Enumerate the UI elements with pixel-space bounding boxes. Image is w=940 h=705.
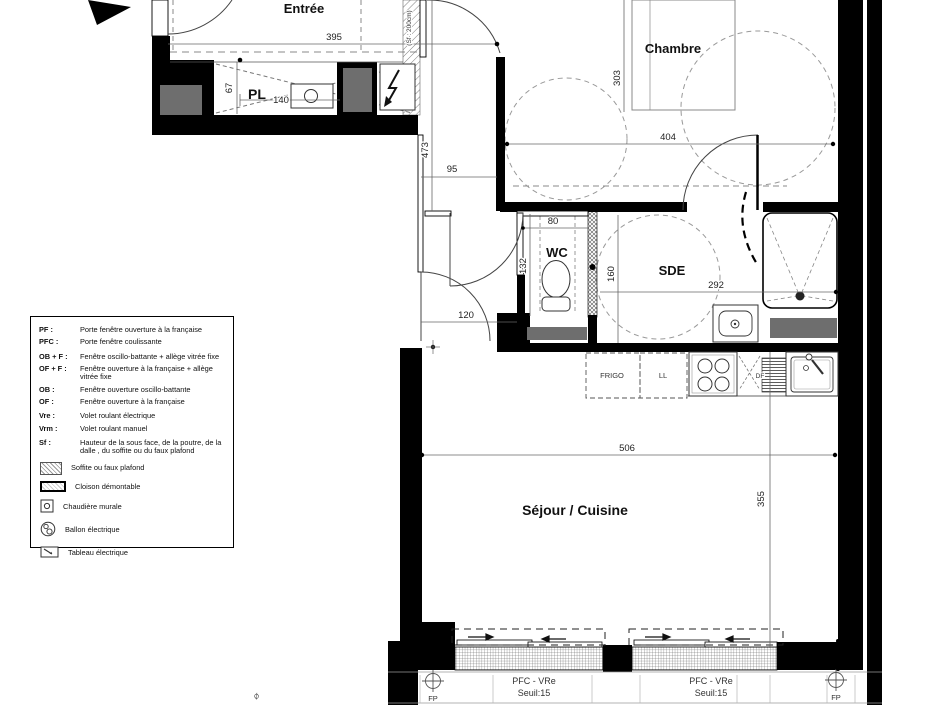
legend-symbol-cloison: Cloison démontable xyxy=(40,481,227,492)
dim-160: 160 xyxy=(606,266,617,282)
walls xyxy=(152,0,882,705)
legend-abbr: Vre : xyxy=(39,412,75,420)
legend-item-off: OF + F : Fenêtre ouverture à la français… xyxy=(39,365,227,381)
duct-wall xyxy=(588,210,597,317)
legend-symbol-label: Cloison démontable xyxy=(75,483,140,491)
legend-symbol-label: Soffite ou faux plafond xyxy=(71,464,144,472)
toilet xyxy=(542,261,570,312)
fp-symbol-left xyxy=(422,670,444,692)
dim-132: 132 xyxy=(518,258,529,274)
dim-80: 80 xyxy=(548,216,559,227)
north-arrow-icon xyxy=(88,0,131,25)
fp-left-label: FP xyxy=(428,694,438,703)
legend-abbr: OB : xyxy=(39,386,75,394)
dim-95: 95 xyxy=(447,164,458,175)
legend-symbol-label: Tableau électrique xyxy=(68,549,128,557)
legend-desc: Volet roulant manuel xyxy=(80,425,227,433)
legend-abbr: PF : xyxy=(39,326,75,334)
soffite-swatch-icon xyxy=(40,462,62,475)
legend-item-of: OF : Fenêtre ouverture à la française xyxy=(39,398,227,406)
legend-symbol-label: Ballon électrique xyxy=(65,526,120,534)
legend-abbr: OB + F : xyxy=(39,353,75,361)
legend-abbr: OF + F : xyxy=(39,365,75,381)
dim-506: 506 xyxy=(619,443,635,454)
legend-abbr: PFC : xyxy=(39,338,75,346)
legend-desc: Fenêtre oscillo-battante + allège vitrée… xyxy=(80,353,227,361)
shower-drain-icon xyxy=(796,292,805,301)
bedroom-door-arc xyxy=(683,135,758,210)
dim-473: 473 xyxy=(420,142,431,158)
legend-symbol-tableau: Tableau électrique xyxy=(40,546,227,560)
sf-note: (Sf : 200cm) xyxy=(406,10,413,45)
dishwasher-label: DF xyxy=(756,373,765,380)
legend-abbr: Vrm : xyxy=(39,425,75,433)
shower-partition-dashed xyxy=(742,192,757,264)
water-heater-swatch-icon xyxy=(40,521,56,539)
bathroom-sink xyxy=(713,305,758,342)
legend-desc: Porte fenêtre coulissante xyxy=(80,338,227,346)
dim-404: 404 xyxy=(660,132,676,143)
legend-abbr: OF : xyxy=(39,398,75,406)
window-shutter-2 xyxy=(632,647,777,670)
fp-right-label: FP xyxy=(831,693,841,702)
floor-plan-page: Entrée Chambre PL WC SDE Séjour / Cuisin… xyxy=(0,0,940,705)
legend-item-pf: PF : Porte fenêtre ouverture à la frança… xyxy=(39,326,227,334)
balcony-lines xyxy=(388,672,882,703)
window1-sill-label: Seuil:15 xyxy=(518,688,551,698)
side-door-arc xyxy=(421,272,490,341)
legend-symbol-ballon: Ballon électrique xyxy=(40,521,227,539)
legend-symbol-chaudiere: Chaudière murale xyxy=(40,499,227,515)
shower xyxy=(763,213,837,308)
chambre-label: Chambre xyxy=(645,41,701,56)
kitchen-sink xyxy=(786,352,838,396)
pl-label: PL xyxy=(248,86,266,102)
legend-item-obf: OB + F : Fenêtre oscillo-battante + allè… xyxy=(39,353,227,361)
dim-355: 355 xyxy=(756,491,767,507)
dim-120: 120 xyxy=(458,310,474,321)
entree-label: Entrée xyxy=(284,1,324,16)
legend-abbr: Sf : xyxy=(39,439,75,455)
dim-140: 140 xyxy=(273,95,289,106)
dim-67: 67 xyxy=(224,83,235,94)
legend-desc: Fenêtre ouverture à la française + allèg… xyxy=(80,365,227,381)
legend-desc: Porte fenêtre ouverture à la française xyxy=(80,326,227,334)
dim-395: 395 xyxy=(326,32,342,43)
electrical-panel-swatch-icon xyxy=(40,546,59,560)
legend-box: PF : Porte fenêtre ouverture à la frança… xyxy=(30,316,234,548)
legend-symbol-soffite: Soffite ou faux plafond xyxy=(40,462,227,475)
legend-item-vre: Vre : Volet roulant électrique xyxy=(39,412,227,420)
legend-item-sf: Sf : Hauteur de la sous face, de la pout… xyxy=(39,439,227,455)
fridge-label: FRIGO xyxy=(600,371,624,380)
sde-label: SDE xyxy=(659,263,686,278)
sejour-label: Séjour / Cuisine xyxy=(522,502,628,518)
edge-note: Ø xyxy=(252,692,262,702)
legend-symbol-label: Chaudière murale xyxy=(63,503,122,511)
legend-item-pfc: PFC : Porte fenêtre coulissante xyxy=(39,338,227,346)
window-shutter-1 xyxy=(455,647,603,670)
legend-desc: Fenêtre ouverture oscillo-battante xyxy=(80,386,227,394)
boiler xyxy=(291,84,333,108)
legend-item-ob: OB : Fenêtre ouverture oscillo-battante xyxy=(39,386,227,394)
dim-303: 303 xyxy=(612,70,623,86)
window2-sill-label: Seuil:15 xyxy=(695,688,728,698)
legend-desc: Fenêtre ouverture à la française xyxy=(80,398,227,406)
entry-door-arc xyxy=(168,0,232,34)
cloison-swatch-icon xyxy=(40,481,66,492)
window2-type-label: PFC - VRe xyxy=(689,676,733,686)
legend-desc: Hauteur de la sous face, de la poutre, d… xyxy=(80,439,227,455)
dishwasher-slot xyxy=(762,358,787,392)
sejour-door-arc xyxy=(450,213,523,286)
legend-desc: Volet roulant électrique xyxy=(80,412,227,420)
electrical-panel xyxy=(380,64,415,110)
legend-item-vrm: Vrm : Volet roulant manuel xyxy=(39,425,227,433)
boiler-swatch-icon xyxy=(40,499,54,515)
wc-label: WC xyxy=(546,245,568,260)
window1-type-label: PFC - VRe xyxy=(512,676,556,686)
cooktop xyxy=(689,352,737,396)
dim-292: 292 xyxy=(708,280,724,291)
thin-walls xyxy=(152,0,588,275)
hall-door-arc xyxy=(427,0,500,53)
washer-label: LL xyxy=(659,371,667,380)
